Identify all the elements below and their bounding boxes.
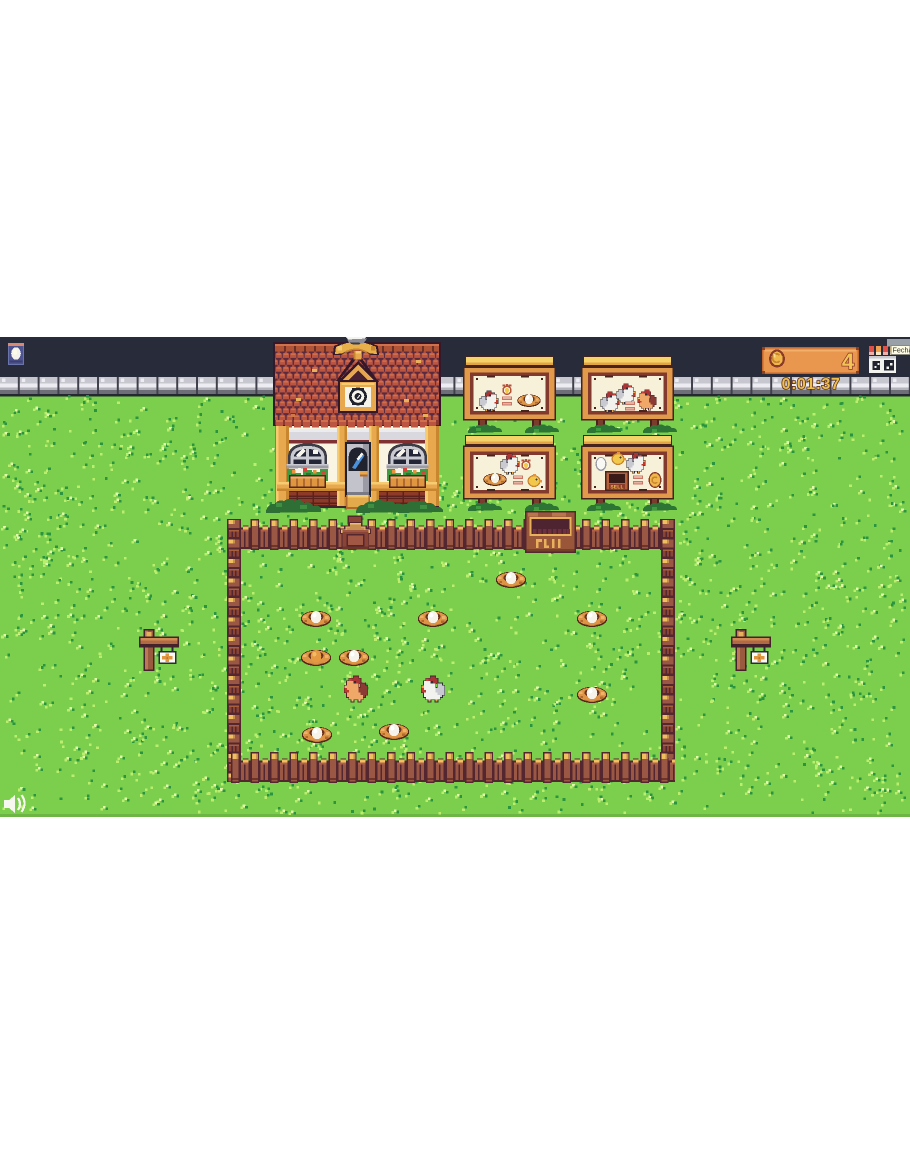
svg-text:0:01:37: 0:01:37 <box>782 376 841 393</box>
svg-text:Fechar: Fechar <box>893 346 910 355</box>
svg-text:SELL: SELL <box>610 484 624 491</box>
svg-text:4: 4 <box>842 349 855 374</box>
